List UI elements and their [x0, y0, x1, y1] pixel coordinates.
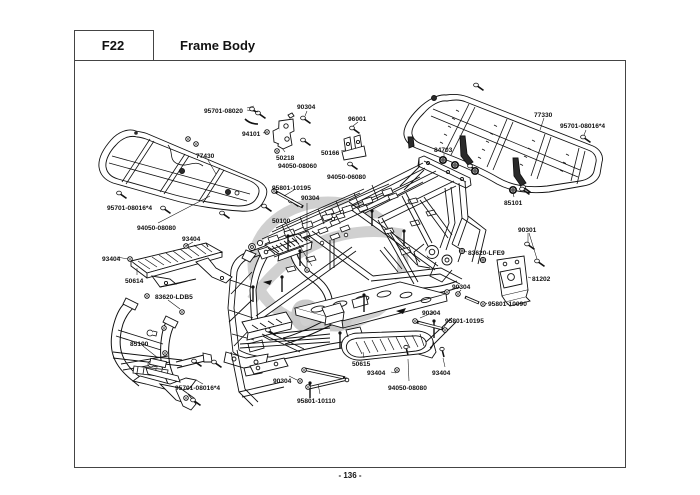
svg-text:93404: 93404 — [367, 370, 386, 377]
svg-text:94050-06080: 94050-06080 — [327, 174, 366, 181]
svg-text:95701-08016*4: 95701-08016*4 — [560, 123, 605, 130]
svg-text:90304: 90304 — [301, 195, 320, 202]
svg-text:90304: 90304 — [422, 310, 441, 317]
svg-text:77430: 77430 — [196, 153, 215, 160]
svg-text:94050-08060: 94050-08060 — [278, 163, 317, 170]
svg-text:85101: 85101 — [504, 200, 523, 207]
svg-text:F22: F22 — [102, 38, 124, 53]
svg-text:50218: 50218 — [276, 155, 295, 162]
svg-text:50614: 50614 — [125, 278, 144, 285]
svg-text:94050-08080: 94050-08080 — [137, 225, 176, 232]
svg-text:95701-08020: 95701-08020 — [204, 108, 243, 115]
svg-text:81202: 81202 — [532, 276, 551, 283]
svg-text:95801-10195: 95801-10195 — [272, 185, 311, 192]
svg-text:50100: 50100 — [272, 218, 291, 225]
svg-text:94050-08080: 94050-08080 — [388, 385, 427, 392]
svg-text:95701-08016*4: 95701-08016*4 — [107, 205, 152, 212]
svg-text:- 136 -: - 136 - — [338, 471, 361, 480]
svg-text:83620-LFE9: 83620-LFE9 — [468, 250, 505, 257]
svg-text:93404: 93404 — [182, 236, 201, 243]
svg-text:95701-08016*4: 95701-08016*4 — [175, 385, 220, 392]
svg-text:95801-10195: 95801-10195 — [445, 318, 484, 325]
svg-text:50166: 50166 — [321, 150, 340, 157]
svg-text:95801-10090: 95801-10090 — [488, 301, 527, 308]
svg-text:84703: 84703 — [434, 147, 453, 154]
svg-text:90304: 90304 — [297, 104, 316, 111]
svg-text:83620-LDB5: 83620-LDB5 — [155, 294, 193, 301]
svg-text:Frame Body: Frame Body — [180, 38, 256, 53]
svg-text:90301: 90301 — [518, 227, 537, 234]
svg-text:93404: 93404 — [432, 370, 451, 377]
svg-text:93404: 93404 — [102, 256, 121, 263]
svg-text:90304: 90304 — [273, 378, 292, 385]
svg-text:77330: 77330 — [534, 112, 553, 119]
svg-text:96001: 96001 — [348, 116, 367, 123]
svg-text:50615: 50615 — [352, 361, 371, 368]
svg-text:90304: 90304 — [452, 284, 471, 291]
svg-text:85100: 85100 — [130, 341, 149, 348]
svg-text:95801-10110: 95801-10110 — [297, 398, 336, 405]
svg-text:94101: 94101 — [242, 131, 261, 138]
